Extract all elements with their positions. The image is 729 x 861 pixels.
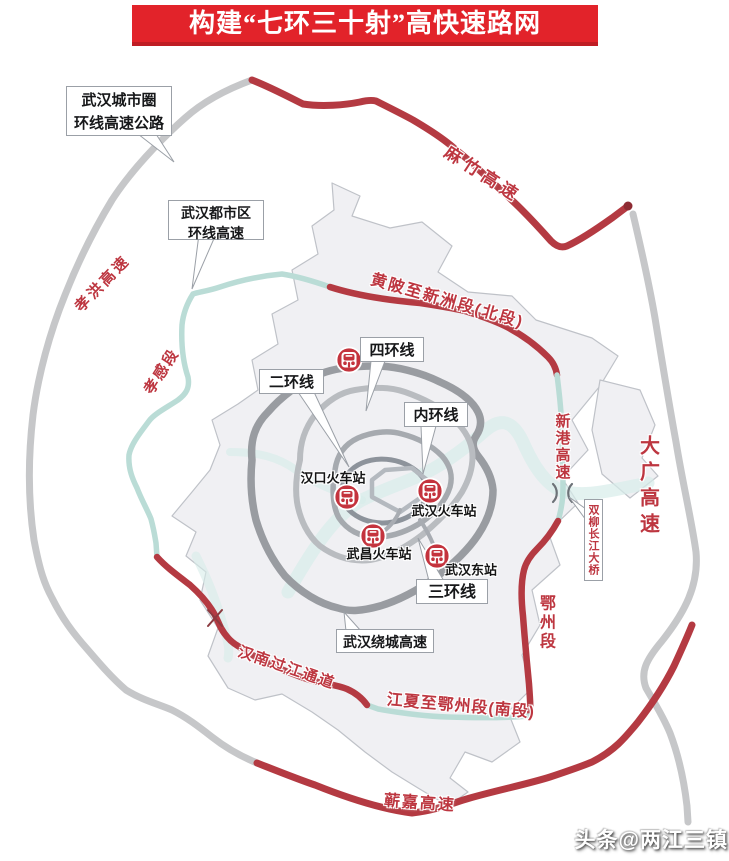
- callout-ring3: 三环线: [416, 579, 488, 604]
- callout-city-circle: 武汉城市圈 环线高速公路: [66, 86, 172, 136]
- callout-city-circle-line2: 环线高速公路: [67, 112, 171, 135]
- watermark: 头条@两江三镇: [570, 824, 728, 854]
- callout-inner-ring: 内环线: [404, 402, 468, 427]
- mazhu-end-cap: [624, 202, 633, 211]
- callout-metro-circle-line2: 环线高速: [169, 223, 263, 243]
- train-station-icon: [337, 348, 362, 373]
- callout-metro-circle: 武汉都市区 环线高速: [168, 200, 264, 240]
- station-label-wuhan-east: 武汉东站: [445, 560, 497, 579]
- page-title: 构建“七环三十射”高快速路网: [132, 5, 598, 46]
- road-label-daguang: 大广高速: [634, 435, 663, 539]
- map-infographic: 构建“七环三十射”高快速路网 武汉城市圈 环线高速公路 武汉都市区 环线高速 四…: [0, 0, 729, 861]
- road-label-qijia: 蕲嘉高速: [383, 787, 457, 816]
- callout-raocheng: 武汉绕城高速: [336, 629, 434, 653]
- road-label-xingang: 新港高速: [552, 413, 573, 481]
- callout-ring2: 二环线: [259, 369, 324, 394]
- callout-shuangliu-bridge: 双柳长江大桥: [584, 499, 603, 581]
- road-label-ezhou-section: 鄂州段: [533, 595, 557, 652]
- station-label-wuhan: 武汉火车站: [411, 501, 476, 520]
- callout-ring4: 四环线: [360, 337, 424, 362]
- mazhu-expressway-line: [252, 80, 628, 247]
- station-label-wuchang: 武昌火车站: [346, 544, 411, 563]
- callout-city-circle-line1: 武汉城市圈: [67, 89, 171, 112]
- station-label-hankou: 汉口火车站: [300, 468, 365, 487]
- train-station-icon-hankou: [335, 485, 360, 510]
- callout-metro-circle-line1: 武汉都市区: [169, 203, 263, 223]
